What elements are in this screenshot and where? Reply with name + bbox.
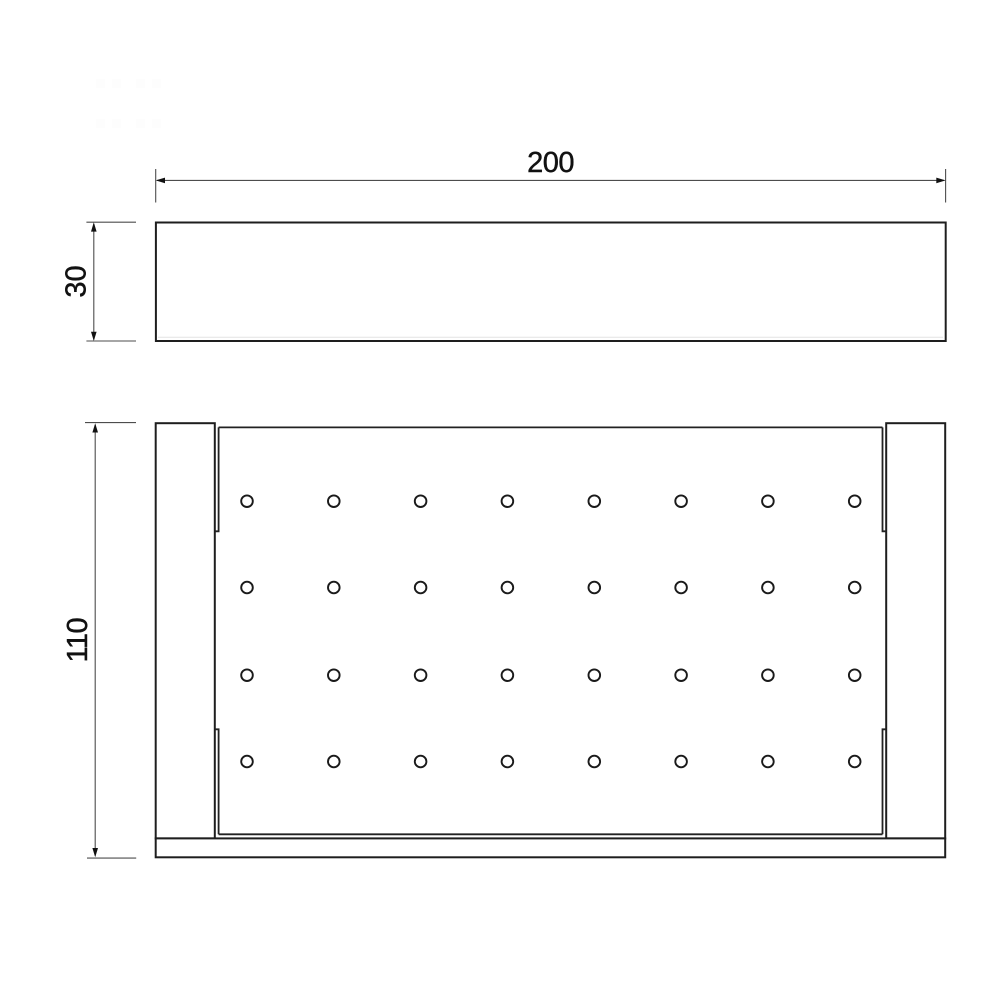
svg-text:200: 200 [527, 147, 574, 179]
svg-text:110: 110 [62, 618, 94, 663]
svg-text:30: 30 [60, 265, 92, 297]
